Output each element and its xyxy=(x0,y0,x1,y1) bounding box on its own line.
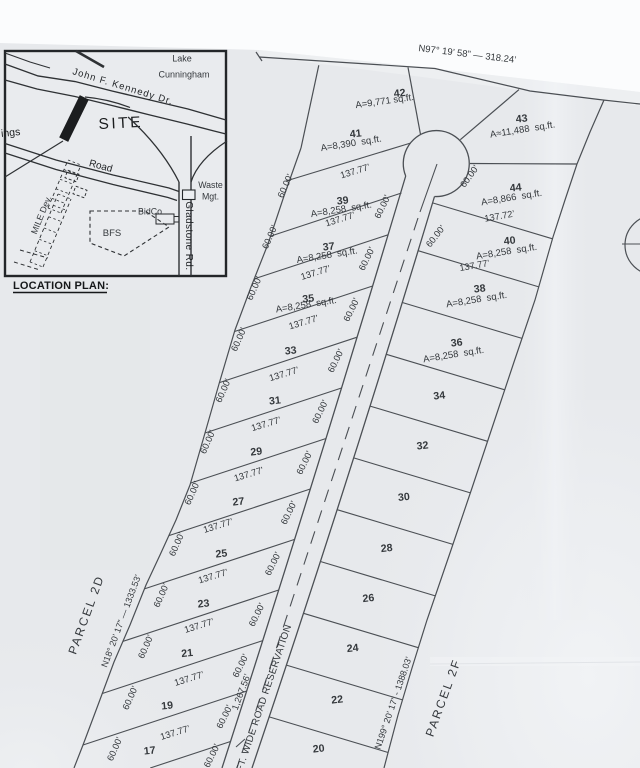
svg-text:17: 17 xyxy=(143,744,156,757)
svg-text:20: 20 xyxy=(312,742,325,755)
svg-text:22: 22 xyxy=(331,693,344,706)
svg-text:21: 21 xyxy=(181,647,194,660)
svg-text:Cunningham: Cunningham xyxy=(158,70,209,80)
svg-text:23: 23 xyxy=(197,597,210,610)
svg-text:19: 19 xyxy=(161,699,174,712)
svg-text:32: 32 xyxy=(416,439,429,452)
svg-text:24: 24 xyxy=(346,642,359,655)
svg-text:Gladstone Rd.: Gladstone Rd. xyxy=(183,201,194,270)
svg-text:Waste: Waste xyxy=(198,180,223,190)
svg-text:BFS: BFS xyxy=(103,228,121,239)
svg-text:Mgt.: Mgt. xyxy=(202,192,219,202)
svg-text:25: 25 xyxy=(215,547,228,560)
svg-text:26: 26 xyxy=(362,592,375,605)
svg-text:Lake: Lake xyxy=(172,54,192,64)
svg-text:30: 30 xyxy=(397,491,410,504)
svg-text:31: 31 xyxy=(268,394,281,407)
svg-text:SITE: SITE xyxy=(98,114,143,133)
svg-text:27: 27 xyxy=(232,495,245,508)
svg-text:ings: ings xyxy=(0,126,20,140)
svg-text:33: 33 xyxy=(284,344,297,357)
svg-text:LOCATION PLAN:: LOCATION PLAN: xyxy=(13,280,109,292)
svg-text:29: 29 xyxy=(250,445,263,458)
svg-text:28: 28 xyxy=(380,542,393,555)
svg-text:34: 34 xyxy=(433,389,446,402)
